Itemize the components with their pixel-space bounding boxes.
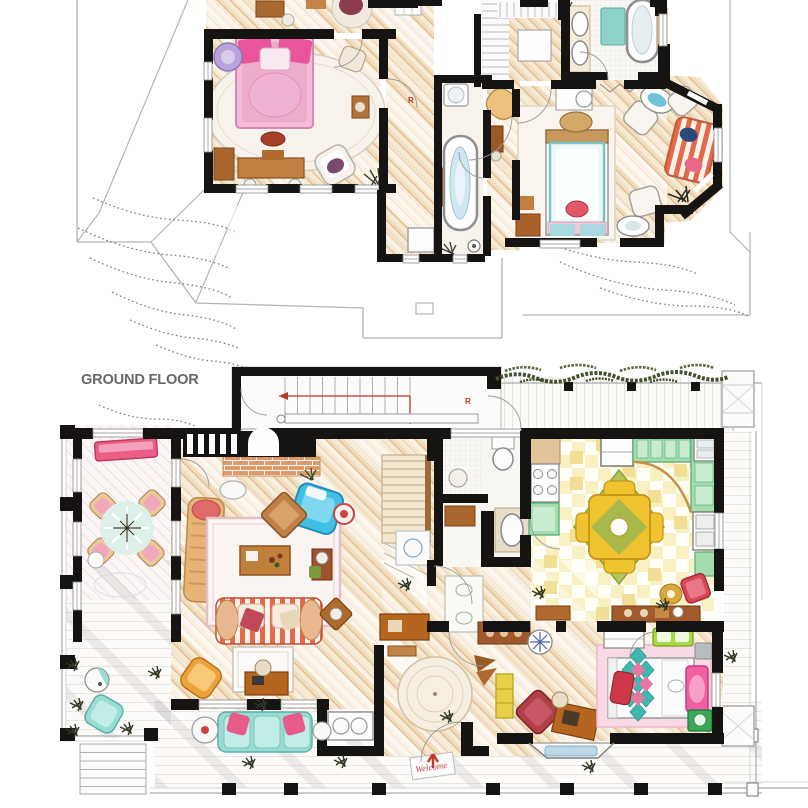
svg-text:R: R	[465, 397, 471, 406]
svg-text:R: R	[408, 96, 414, 105]
svg-text:GROUND FLOOR: GROUND FLOOR	[81, 372, 199, 388]
